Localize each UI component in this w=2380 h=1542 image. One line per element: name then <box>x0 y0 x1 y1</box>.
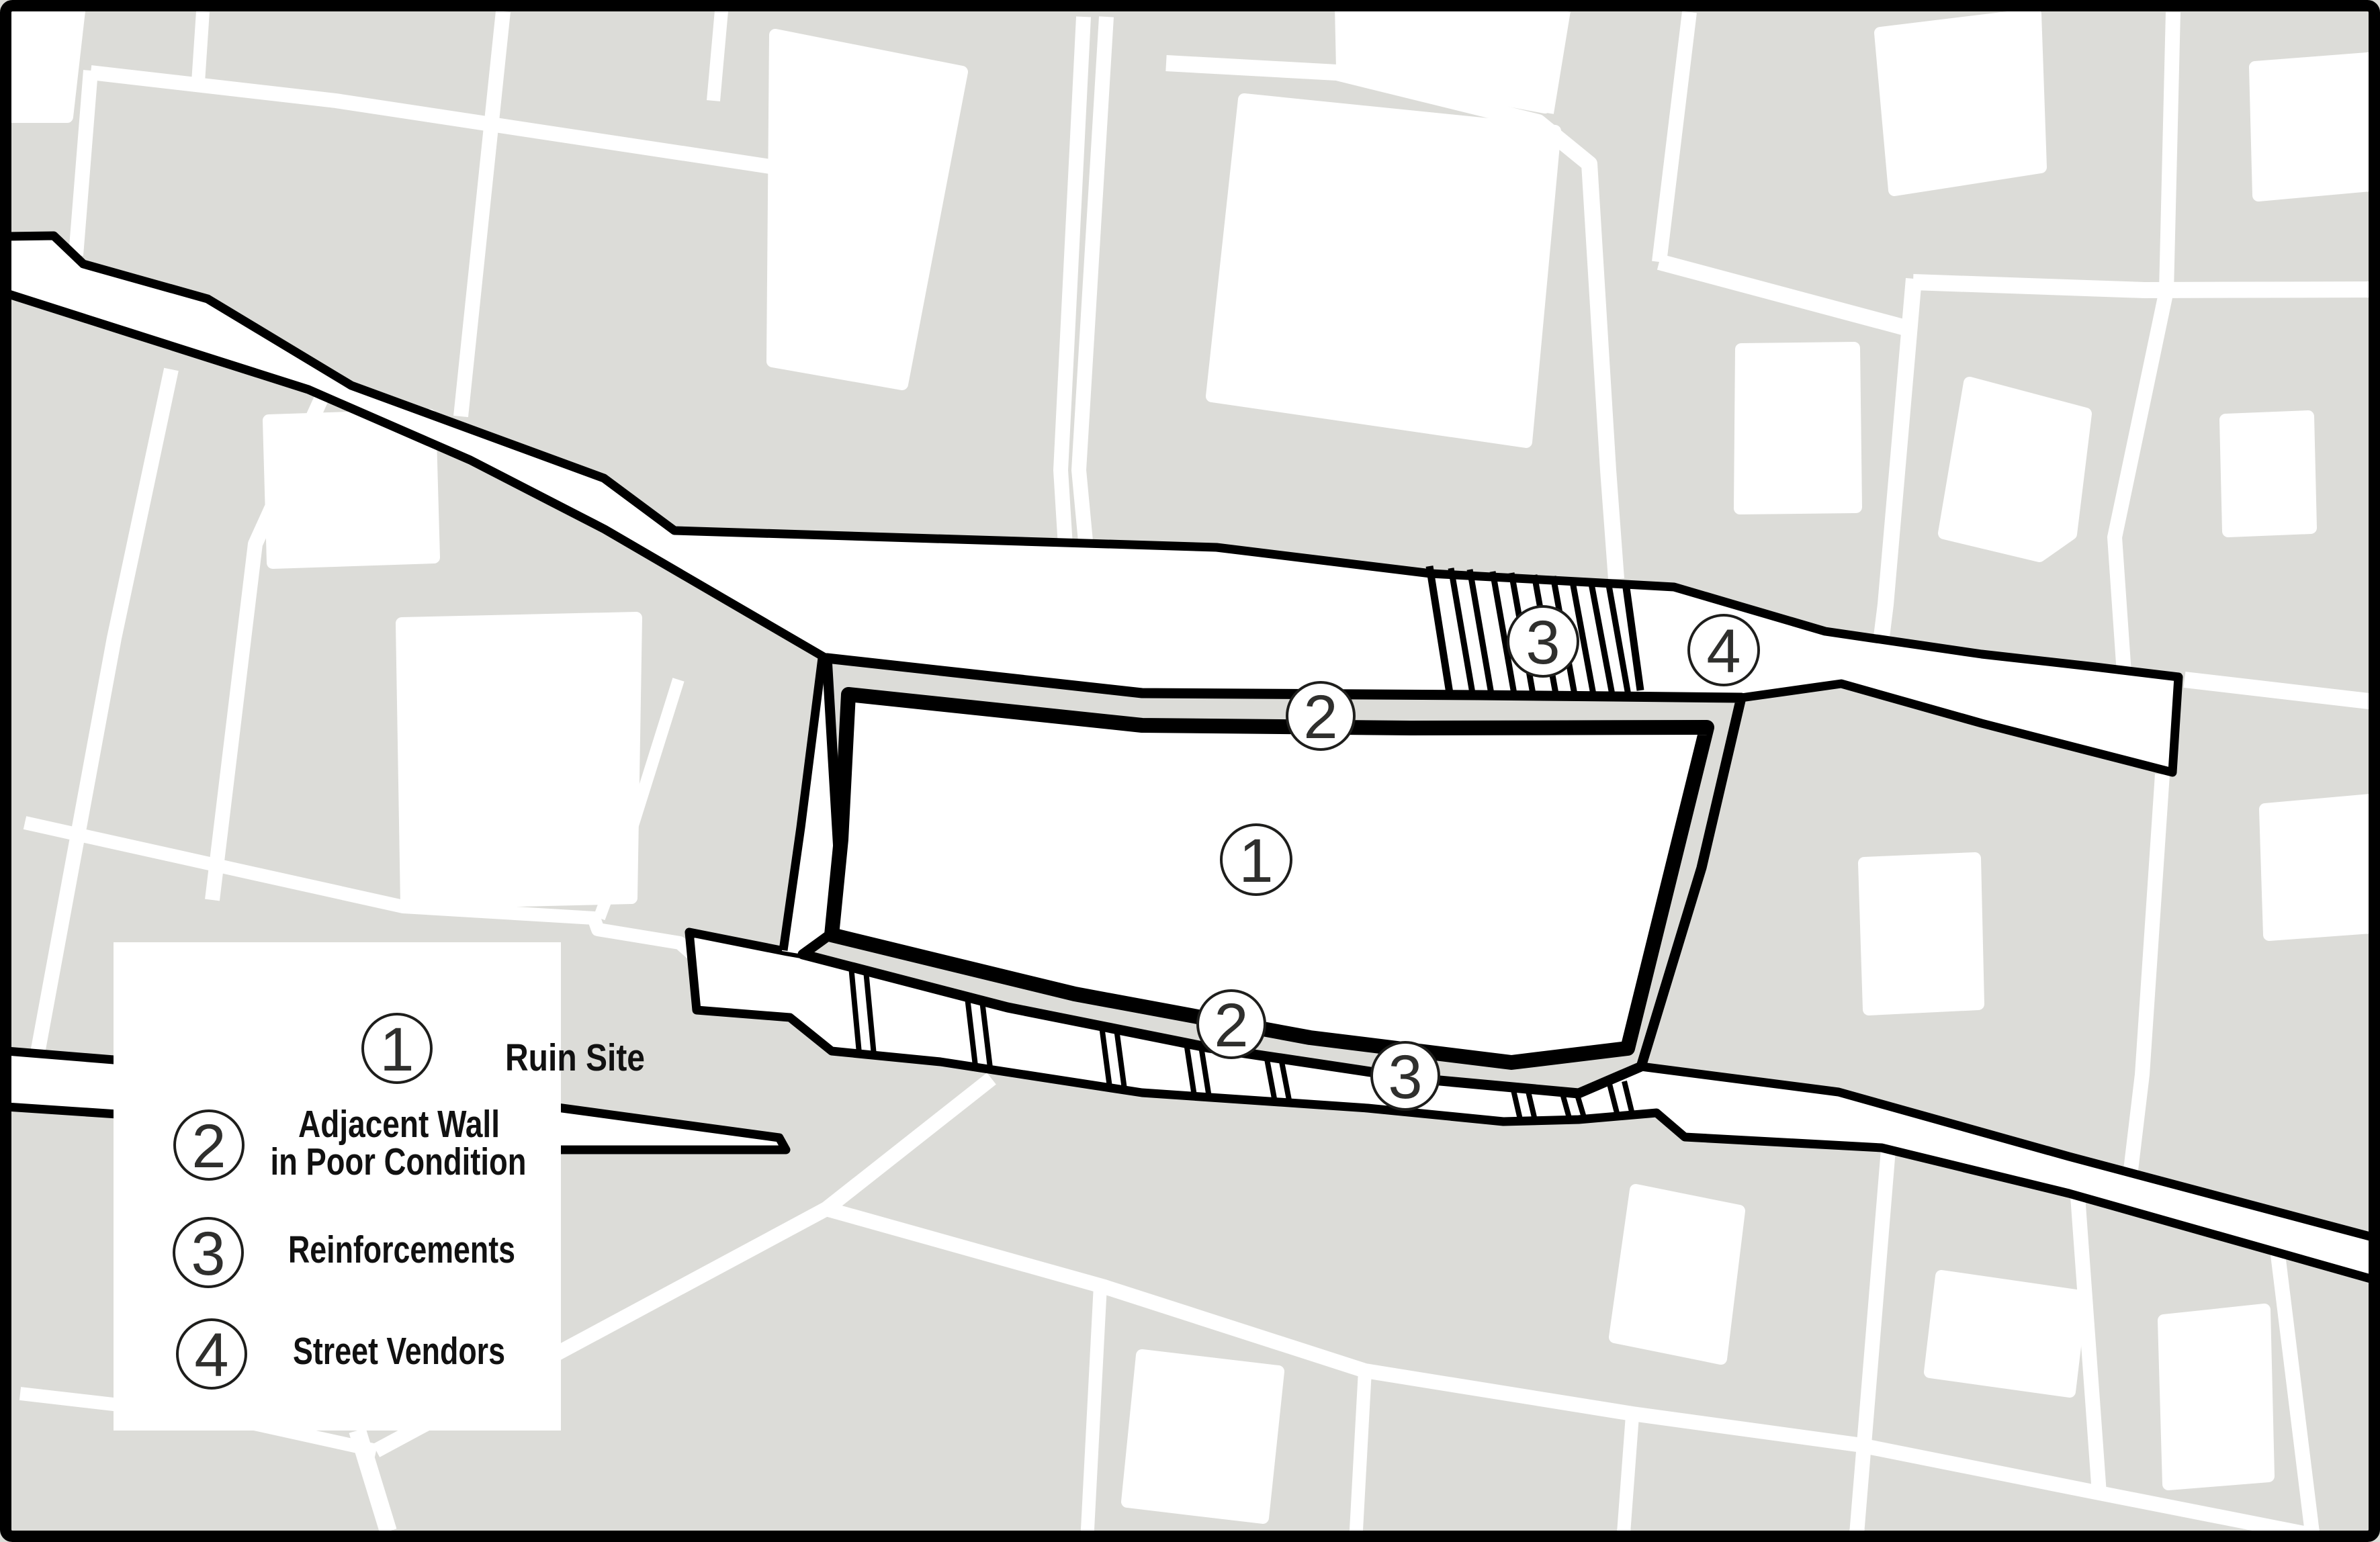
svg-text:3: 3 <box>1388 1043 1422 1112</box>
svg-text:3: 3 <box>191 1220 225 1288</box>
svg-text:2: 2 <box>191 1112 226 1181</box>
svg-text:Adjacent Wall: Adjacent Wall <box>298 1103 500 1146</box>
svg-text:1: 1 <box>1239 827 1273 895</box>
svg-text:4: 4 <box>194 1321 228 1390</box>
svg-text:Reinforcements: Reinforcements <box>288 1228 515 1271</box>
svg-text:3: 3 <box>1526 608 1560 677</box>
svg-text:1: 1 <box>380 1015 414 1084</box>
svg-text:2: 2 <box>1303 683 1337 752</box>
svg-text:4: 4 <box>1706 617 1740 686</box>
svg-text:Ruin Site: Ruin Site <box>505 1036 645 1079</box>
svg-text:2: 2 <box>1214 991 1248 1060</box>
svg-text:Street Vendors: Street Vendors <box>293 1330 505 1373</box>
svg-text:in Poor Condition: in Poor Condition <box>271 1140 527 1183</box>
